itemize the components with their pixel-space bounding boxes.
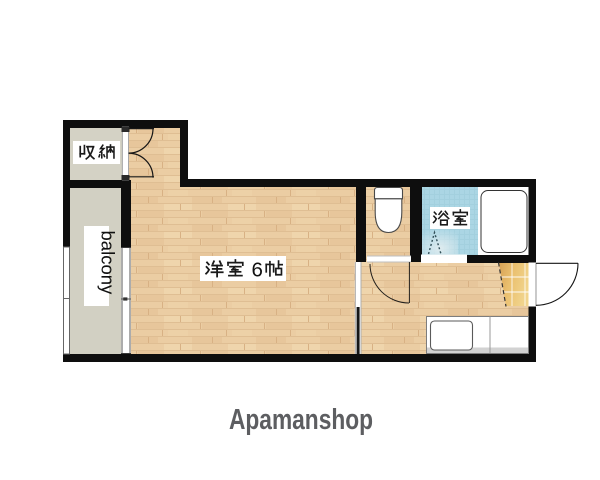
svg-text:6: 6 bbox=[252, 259, 263, 282]
svg-text:Apamanshop: Apamanshop bbox=[229, 404, 373, 436]
svg-text:balcony: balcony bbox=[98, 231, 119, 296]
